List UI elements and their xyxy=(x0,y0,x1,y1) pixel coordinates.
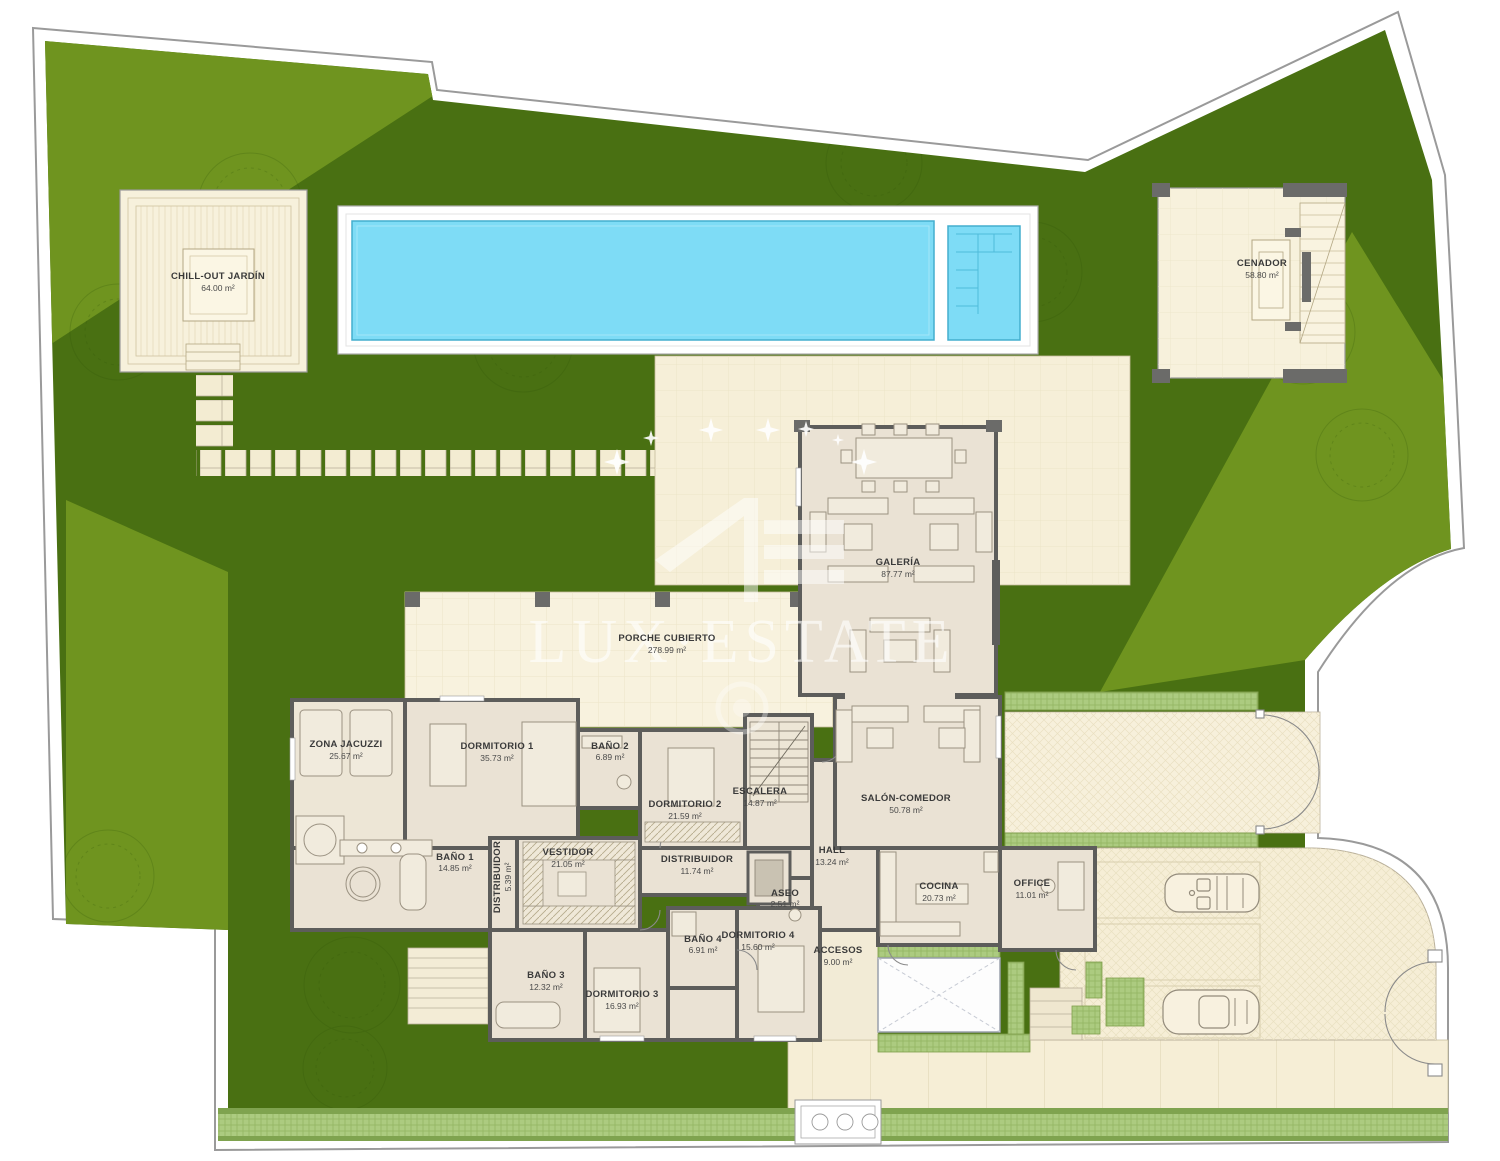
car-icon xyxy=(1163,990,1259,1034)
room-label-dormitorio-1: DORMITORIO 1 xyxy=(460,741,534,752)
svg-text:16.93 m²: 16.93 m² xyxy=(605,1001,639,1011)
room-label-salon-comedor: SALÓN-COMEDOR xyxy=(861,792,951,804)
svg-text:50.78 m²: 50.78 m² xyxy=(889,805,923,815)
svg-text:278.99 m²: 278.99 m² xyxy=(648,645,686,655)
room-label-zona-jacuzzi: ZONA JACUZZI xyxy=(310,739,383,750)
watermark-brand-text: LUX·ESTATE xyxy=(529,608,956,676)
exterior-stair xyxy=(408,948,488,1024)
swimming-pool xyxy=(338,206,1038,354)
svg-text:21.05 m²: 21.05 m² xyxy=(551,859,585,869)
svg-text:6.91 m²: 6.91 m² xyxy=(689,945,718,955)
svg-text:13.24 m²: 13.24 m² xyxy=(815,857,849,867)
room-label-bano-4: BAÑO 4 xyxy=(684,934,722,945)
site-plan: LUX·ESTATE CHILL-OUT JARDÍN 64.00 m² CEN… xyxy=(0,0,1500,1161)
car-icon xyxy=(1165,874,1259,912)
planter xyxy=(878,1034,1030,1052)
room-label-escalera: ESCALERA xyxy=(733,786,788,797)
hedge-strip xyxy=(1005,833,1258,847)
porch-column xyxy=(535,592,550,607)
planter xyxy=(1106,978,1144,1026)
svg-text:11.74 m²: 11.74 m² xyxy=(681,866,714,876)
porch-column xyxy=(405,592,420,607)
room-label-vestidor: VESTIDOR xyxy=(543,847,594,858)
room-label-cocina: COCINA xyxy=(919,881,958,892)
porch-column xyxy=(655,592,670,607)
room-label-chill-out-jardin: CHILL-OUT JARDÍN xyxy=(171,271,265,282)
svg-text:6.89 m²: 6.89 m² xyxy=(596,752,625,762)
svg-text:35.73 m²: 35.73 m² xyxy=(480,753,514,763)
svg-text:15.60 m²: 15.60 m² xyxy=(741,942,775,952)
room-label-dormitorio-2: DORMITORIO 2 xyxy=(648,799,721,810)
cenador-structure xyxy=(1152,183,1347,383)
svg-text:58.80 m²: 58.80 m² xyxy=(1245,270,1279,280)
hedge-strip xyxy=(1005,692,1258,710)
planter xyxy=(1072,1006,1100,1034)
room-label-aseo: ASEO xyxy=(771,888,799,899)
svg-text:25.67 m²: 25.67 m² xyxy=(329,751,363,761)
room-label-cenador: CENADOR xyxy=(1237,258,1287,269)
room-label-bano-2: BAÑO 2 xyxy=(591,741,629,752)
svg-text:20.73 m²: 20.73 m² xyxy=(922,893,956,903)
svg-text:12.32 m²: 12.32 m² xyxy=(529,982,563,992)
chill-out-steps xyxy=(186,344,240,370)
svg-text:87.77 m²: 87.77 m² xyxy=(881,569,915,579)
svg-text:11.01 m²: 11.01 m² xyxy=(1016,890,1049,900)
side-courtyard xyxy=(1005,692,1320,847)
room-label-galeria: GALERÍA xyxy=(876,557,921,568)
entrance-gate-box xyxy=(795,1100,881,1144)
room-label-bano-1: BAÑO 1 xyxy=(436,852,474,863)
svg-text:14.85 m²: 14.85 m² xyxy=(438,863,472,873)
svg-text:9.00 m²: 9.00 m² xyxy=(824,957,853,967)
room-label-office: OFFICE xyxy=(1014,878,1051,889)
pool-water xyxy=(352,221,934,340)
svg-text:5.39 m²: 5.39 m² xyxy=(503,862,513,891)
room-dormitorio-3-ext xyxy=(668,988,737,1040)
spa-pool xyxy=(948,226,1020,340)
room-label-porche-cubierto: PORCHE CUBIERTO xyxy=(618,633,715,644)
svg-text:2.51 m²: 2.51 m² xyxy=(771,899,800,909)
svg-text:64.00 m²: 64.00 m² xyxy=(201,283,235,293)
room-label-accesos: ACCESOS xyxy=(813,945,862,956)
room-label-distribuidor: DISTRIBUIDOR xyxy=(661,854,733,865)
planter xyxy=(1086,962,1102,998)
room-label-dormitorio-4: DORMITORIO 4 xyxy=(721,930,795,941)
room-label-dormitorio-3: DORMITORIO 3 xyxy=(585,989,658,1000)
svg-text:14.87 m²: 14.87 m² xyxy=(743,798,777,808)
svg-text:21.59 m²: 21.59 m² xyxy=(668,811,702,821)
svg-text:DISTRIBUIDOR: DISTRIBUIDOR xyxy=(492,841,503,913)
room-label-hall: HALL xyxy=(819,845,846,856)
floor-plan-canvas: LUX·ESTATE CHILL-OUT JARDÍN 64.00 m² CEN… xyxy=(0,0,1500,1161)
planter xyxy=(1008,962,1024,1034)
room-label-bano-3: BAÑO 3 xyxy=(527,970,565,981)
